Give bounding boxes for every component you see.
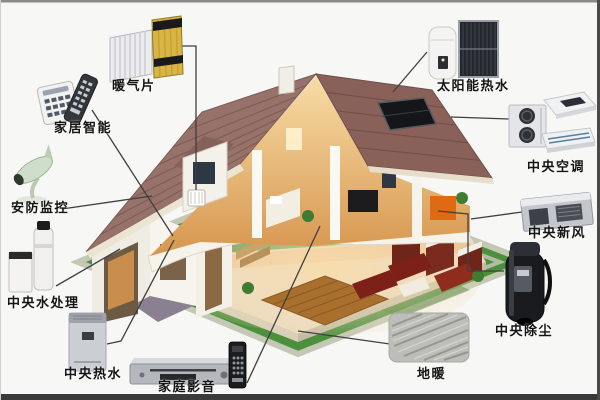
leader-fresh-air xyxy=(471,212,522,219)
radiator-white-icon xyxy=(108,28,154,82)
diagram-artwork xyxy=(0,0,600,400)
label-home-av: 家庭影音 xyxy=(158,381,216,394)
label-security-monitoring: 安防监控 xyxy=(11,202,69,215)
partition-wall xyxy=(412,176,422,242)
av-remote-icon xyxy=(229,342,246,388)
security-camera-icon xyxy=(8,144,61,204)
label-floor-heating: 地暖 xyxy=(417,368,446,381)
label-solar-hot-water: 太阳能热水 xyxy=(437,80,510,93)
leader-ac xyxy=(451,117,509,119)
ac-cassette-unit-icon xyxy=(544,92,596,119)
central-vacuum-icon xyxy=(506,242,550,326)
partition-wall xyxy=(252,150,262,238)
label-smart-home-control: 家居智能 xyxy=(54,122,112,135)
label-central-fresh-air: 中央新风 xyxy=(528,227,586,240)
solar-panel-icon xyxy=(459,21,498,77)
floor-heating-photo xyxy=(389,313,469,362)
boiler-icon xyxy=(69,313,106,371)
leader-solar xyxy=(393,52,427,92)
plant xyxy=(302,210,314,222)
house-illustration xyxy=(78,66,530,354)
wall-radiator xyxy=(188,190,205,206)
orange-cabinet xyxy=(430,196,456,220)
label-radiator: 暖气片 xyxy=(112,80,156,93)
label-central-ac: 中央空调 xyxy=(527,161,585,174)
label-central-vacuum: 中央除尘 xyxy=(495,325,553,338)
label-water-treatment: 中央水处理 xyxy=(7,297,80,310)
partition-wall xyxy=(330,146,340,240)
radiator-yellow-icon xyxy=(152,16,183,78)
ac-outdoor-unit-icon xyxy=(509,105,546,147)
label-central-hot-water: 中央热水 xyxy=(64,368,122,381)
water-treatment-icon xyxy=(9,221,53,292)
solar-tank-icon xyxy=(429,27,456,79)
chimney xyxy=(279,66,294,94)
plant xyxy=(456,192,468,204)
smart-home-diagram: 暖气片 家居智能 安防监控 中央水处理 中央热水 家庭影音 地暖 中央除尘 中央… xyxy=(0,0,600,400)
tv xyxy=(348,190,378,212)
plant xyxy=(242,282,254,294)
ac-duct-unit-icon xyxy=(542,128,595,153)
plant xyxy=(472,270,484,282)
